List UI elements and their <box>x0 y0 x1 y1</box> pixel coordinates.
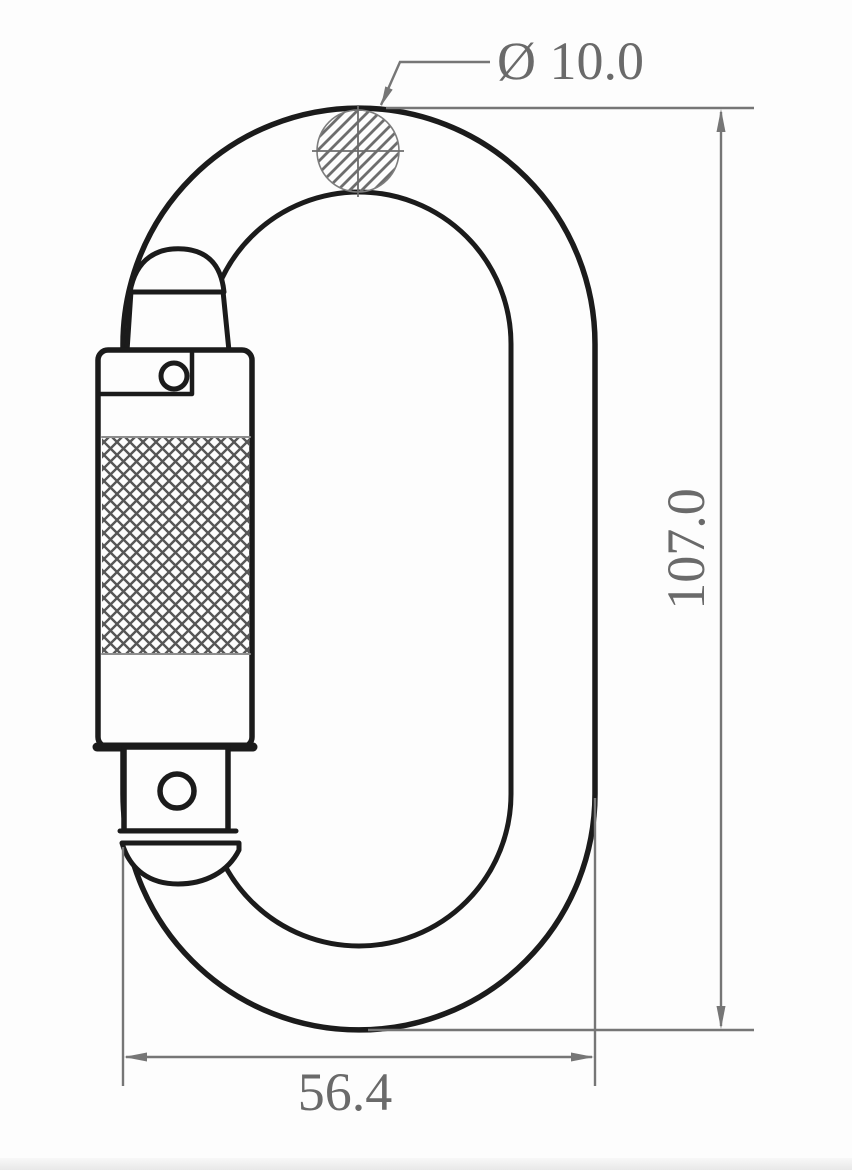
width-arrow-right-icon <box>571 1053 594 1062</box>
gate-hinge-dome <box>130 249 224 292</box>
diameter-label: Ø 10.0 <box>497 31 644 91</box>
gate-neck <box>125 289 230 352</box>
height-arrow-up-icon <box>717 109 726 132</box>
center-mark-icon <box>312 105 404 197</box>
knurl-texture <box>102 437 250 654</box>
diameter-leader-line <box>381 62 490 105</box>
drawing-canvas: Ø 10.0 107.0 56.4 <box>0 0 852 1170</box>
cross-section <box>312 105 404 197</box>
width-label: 56.4 <box>298 1062 393 1122</box>
width-arrow-left-icon <box>124 1053 147 1062</box>
gate-rivet <box>160 774 194 808</box>
height-arrow-down-icon <box>717 1006 726 1029</box>
page-bottom-edge <box>0 1158 852 1170</box>
diameter-leader-arrow-icon <box>381 86 393 106</box>
carabiner-technical-drawing: Ø 10.0 107.0 56.4 <box>0 0 852 1170</box>
sleeve-pin <box>161 363 187 389</box>
height-label: 107.0 <box>656 488 716 610</box>
